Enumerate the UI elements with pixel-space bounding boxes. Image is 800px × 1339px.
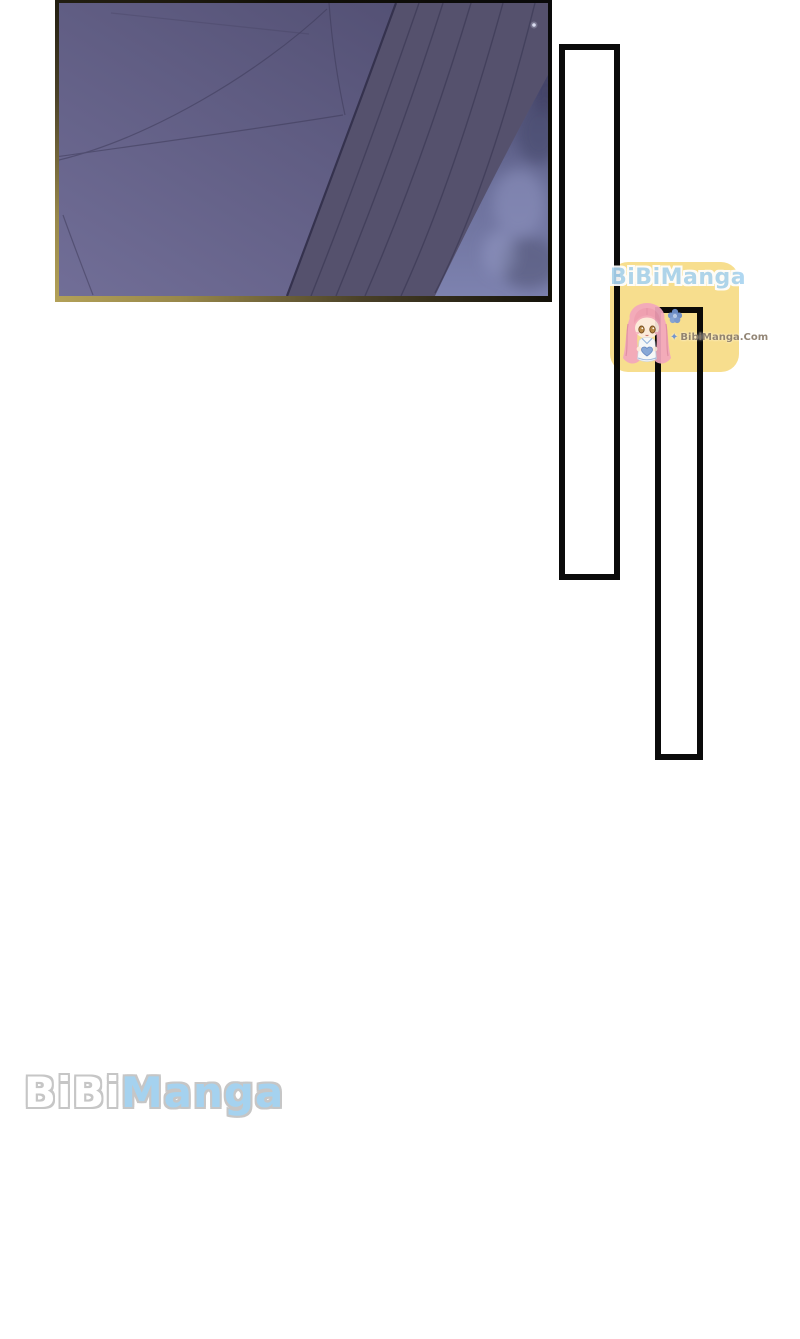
sparkle-icon: ✦ <box>670 332 678 343</box>
manga-panel <box>55 0 552 302</box>
site-url-text: BibiManga.Com <box>680 332 768 343</box>
footer-logo-bibi: BiBi <box>24 1068 121 1117</box>
footer-logo-manga: Manga <box>121 1068 284 1117</box>
comic-page: BiBiManga <box>0 0 800 1339</box>
footer-logo: BiBiManga <box>24 1068 284 1117</box>
panel-frame-empty-2 <box>655 307 703 760</box>
flower-icon <box>668 309 682 323</box>
watermark-site-url: ✦BibiManga.Com <box>670 332 768 343</box>
watermark-content: BiBiManga <box>610 262 739 372</box>
panel-artwork <box>59 3 548 296</box>
watermark-title: BiBiManga <box>610 265 739 290</box>
watermark-sticker: BiBiManga <box>610 262 739 372</box>
star-icon <box>532 23 536 27</box>
